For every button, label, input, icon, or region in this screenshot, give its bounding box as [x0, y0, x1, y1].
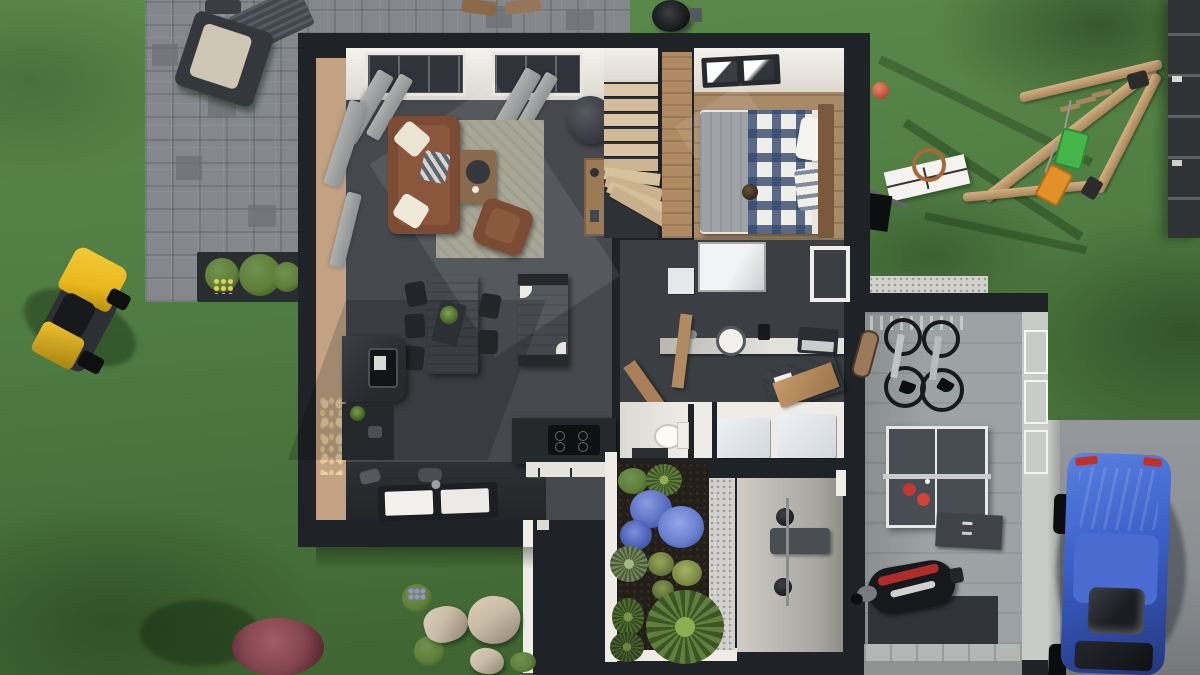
dining-chair	[403, 345, 425, 371]
hall-stool	[774, 578, 792, 596]
bbq-shelf	[690, 8, 702, 22]
bbq-grill	[652, 0, 690, 32]
garage-shelf-outline	[1024, 330, 1048, 374]
dining-table	[428, 276, 478, 374]
kitchen-island	[512, 418, 616, 464]
kitchen-cabinet-left	[342, 404, 394, 460]
green-bush	[510, 652, 536, 672]
planter-flowers-yellow	[213, 278, 233, 294]
stair-step	[604, 99, 658, 111]
house-shadow-south	[316, 547, 534, 569]
shower-cubicle	[698, 242, 766, 292]
stair-step	[604, 114, 658, 126]
sideboard-corner	[556, 342, 566, 354]
hall-stool	[776, 508, 794, 526]
dryer	[778, 414, 836, 458]
desk-item	[590, 168, 599, 177]
desk-speaker	[758, 324, 770, 340]
burner	[578, 431, 588, 441]
island-front-panel	[526, 462, 616, 477]
patio-tile	[248, 205, 276, 227]
office-window	[810, 246, 850, 302]
garage-shelf-outline	[1024, 430, 1048, 474]
toilet-tank	[677, 422, 689, 449]
burner	[555, 431, 565, 441]
sideboard-cap	[518, 355, 568, 366]
island-handle	[538, 468, 540, 477]
island-handle	[570, 468, 572, 477]
cabinet-mark	[962, 522, 972, 526]
coat-rack-pole	[786, 498, 789, 606]
patio-tile	[152, 44, 178, 66]
car-sunroof	[1088, 587, 1146, 635]
desk-item	[590, 210, 599, 222]
car-rear-window	[1077, 467, 1159, 532]
car-windshield	[1074, 641, 1153, 672]
garage-door-inner	[836, 470, 846, 496]
counter-item	[359, 468, 382, 485]
paddle-red	[903, 483, 916, 496]
double-bed	[700, 108, 836, 236]
patio-tile	[566, 10, 594, 30]
stair-step	[604, 144, 658, 156]
shower-tray	[632, 448, 668, 458]
dining-chair	[478, 292, 502, 319]
stove-display	[374, 356, 386, 370]
entry-hall-floor	[737, 478, 843, 652]
fence-post-cap	[1172, 160, 1182, 166]
pingpong-net	[883, 474, 991, 479]
wc-partition	[712, 402, 717, 458]
sink-faucet	[431, 480, 440, 489]
table-tray	[466, 160, 490, 184]
purple-flowers	[408, 588, 426, 600]
succulent	[648, 552, 674, 576]
skylight-pane	[707, 61, 738, 83]
floorplan-render	[0, 0, 1200, 675]
table-cup	[472, 186, 479, 193]
stair-landing	[604, 48, 658, 82]
armchair-cushion	[188, 22, 253, 90]
cabinet-item	[368, 426, 382, 438]
patio-tile	[176, 156, 202, 180]
sideboard	[518, 274, 568, 366]
planter-box	[197, 252, 303, 302]
red-ball	[872, 82, 889, 99]
mower-wheel	[76, 349, 105, 375]
dining-chair	[478, 330, 499, 355]
garage-shelf-outline	[1024, 380, 1048, 424]
kitchen-sink	[377, 482, 498, 522]
garage-door	[864, 644, 1022, 661]
island-cooktop	[548, 425, 600, 455]
bed-headboard	[818, 104, 834, 238]
agave-plant	[610, 546, 648, 582]
armchair-seat	[483, 206, 521, 244]
bed-duvet-gray	[700, 112, 754, 232]
dining-chair	[404, 280, 428, 307]
laptop	[797, 327, 839, 356]
sink-basin	[441, 488, 490, 514]
stair-step	[604, 84, 658, 96]
sideboard-cap	[518, 274, 568, 285]
table-plant	[440, 306, 458, 324]
bed-accessory	[742, 184, 758, 200]
yucca-large	[646, 590, 724, 664]
stair-step	[604, 129, 658, 141]
burner	[578, 442, 588, 452]
cabinet-plant	[350, 406, 365, 421]
hydrangea-blue	[658, 506, 704, 548]
sofa	[388, 116, 460, 234]
scooter-tail	[949, 567, 964, 584]
cabinet-mark	[962, 532, 972, 536]
coffee-table	[460, 150, 496, 204]
yucca-small	[612, 598, 644, 636]
staircase	[604, 84, 658, 238]
fence	[1168, 0, 1200, 238]
console-desk	[584, 158, 606, 236]
washing-machine	[718, 418, 770, 458]
sink-basin	[385, 490, 434, 516]
basketball-hoop	[912, 148, 946, 182]
fence-post-cap	[1172, 76, 1182, 82]
sideboard-corner	[520, 286, 532, 298]
succulent	[672, 560, 702, 586]
planter-bush	[273, 262, 301, 292]
hall-bench	[770, 528, 830, 554]
outdoor-dining-chair	[205, 0, 241, 14]
dining-chair	[404, 313, 426, 338]
wall-clock	[716, 326, 746, 356]
garage-apron	[864, 661, 1022, 675]
white-cabinet	[668, 268, 694, 294]
yucca-small	[610, 632, 644, 662]
pellet-stove	[342, 336, 406, 402]
red-bush	[232, 618, 324, 675]
skylight-pane	[743, 59, 774, 81]
paddle-red	[917, 493, 930, 506]
pingpong-ball	[925, 479, 930, 484]
blue-car	[1056, 446, 1182, 675]
burner	[555, 442, 565, 452]
